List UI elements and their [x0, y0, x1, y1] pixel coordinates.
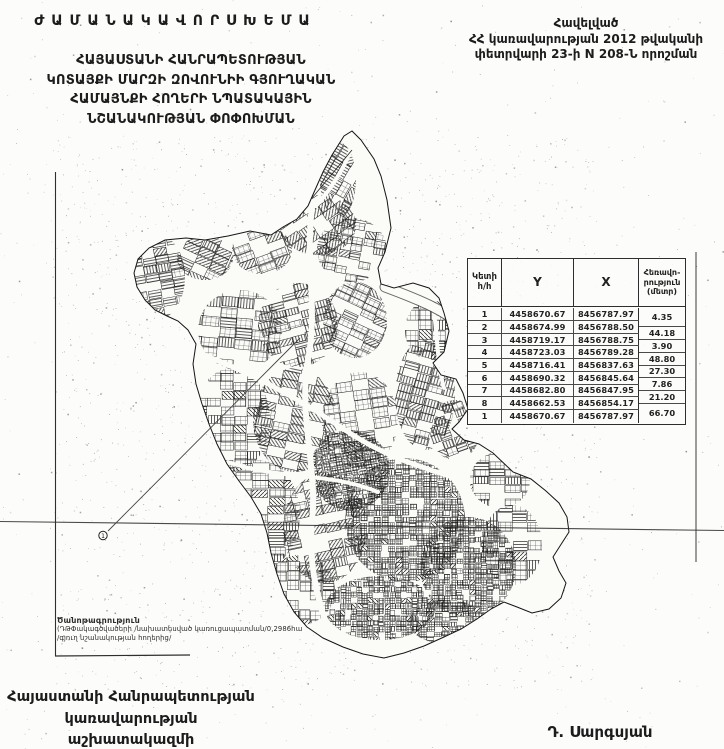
cell-y: 4458716.41 — [502, 359, 574, 371]
cell-y: 4458723.03 — [502, 346, 574, 358]
header-y: Y — [502, 259, 574, 306]
subtitle-line-1: ՀԱՅԱՍՏԱՆԻ ՀԱՆՐԱՊԵՏՈՒԹՅԱՆ — [2, 51, 380, 71]
cell-distance: 66.70 — [639, 404, 685, 424]
cell-x: 8456788.50 — [574, 321, 639, 333]
cell-x: 8456837.63 — [574, 359, 639, 371]
map-note-title: Ծանոթագրություն — [57, 616, 357, 625]
cell-distance: 3.90 — [639, 340, 685, 353]
table-row: 14458670.678456787.97 — [468, 410, 639, 423]
table-row: 74458682.808456847.95 — [468, 385, 639, 398]
cell-point: 1 — [468, 410, 502, 423]
cell-x: 8456854.17 — [574, 397, 639, 409]
cell-distance: 44.18 — [639, 327, 685, 340]
cell-x: 8456789.28 — [574, 346, 639, 358]
cell-point: 7 — [468, 385, 502, 397]
subtitle-line-3: ՀԱՄԱՅՆՔԻ ՀՈՂԵՐԻ ՆՊԱՏԱԿԱՅԻՆ — [2, 90, 380, 110]
cell-point: 4 — [468, 346, 502, 358]
table-row: 24458674.998456788.50 — [468, 321, 639, 334]
coordinate-table-header: Կետի հ/հ Y X Հեռավո- րություն (մետր) — [468, 259, 685, 307]
document-subtitle: ՀԱՅԱՍՏԱՆԻ ՀԱՆՐԱՊԵՏՈՒԹՅԱՆ ԿՈՏԱՅՔԻ ՄԱՐԶԻ Զ… — [2, 51, 380, 129]
approval-line-2: ՀՀ կառավարության 2012 թվականի — [450, 32, 722, 48]
cell-point: 1 — [468, 308, 502, 320]
cell-distance: 48.80 — [639, 353, 685, 366]
subtitle-line-2: ԿՈՏԱՅՔԻ ՄԱՐԶԻ ԶՈՎՈՒՆԻԻ ԳՅՈՒՂԱԿԱՆ — [2, 71, 380, 91]
cell-x: 8456787.97 — [574, 410, 639, 423]
table-row: 34458719.178456788.75 — [468, 334, 639, 347]
approval-line-3: փետրվարի 23-ի N 208-Ն որոշման — [450, 47, 722, 63]
signatory-line-2: կառավարության աշխատակազմի — [0, 709, 262, 749]
cell-point: 3 — [468, 334, 502, 346]
header-point-number: Կետի հ/հ — [468, 259, 502, 306]
cell-y: 4458674.99 — [502, 321, 574, 333]
cell-x: 8456845.64 — [574, 372, 639, 384]
signatory-title: Հայաստանի Հանրապետության կառավարության ա… — [0, 687, 262, 749]
cell-distance: 7.86 — [639, 378, 685, 391]
cell-point: 6 — [468, 372, 502, 384]
cell-distance: 21.20 — [639, 391, 685, 404]
cell-x: 8456787.97 — [574, 308, 639, 320]
approval-note: Հավելված ՀՀ կառավարության 2012 թվականի փ… — [450, 16, 722, 63]
cell-distance: 27.30 — [639, 366, 685, 379]
subtitle-line-4: ՆՇԱՆԱԿՈՒԹՅԱՆ ՓՈՓՈԽՄԱՆ — [2, 110, 380, 130]
cell-y: 4458719.17 — [502, 334, 574, 346]
cell-y: 4458670.67 — [502, 410, 574, 423]
cell-point: 2 — [468, 321, 502, 333]
cell-distance: 4.35 — [639, 308, 685, 327]
cell-y: 4458662.53 — [502, 397, 574, 409]
cell-x: 8456788.75 — [574, 334, 639, 346]
table-row: 84458662.538456854.17 — [468, 397, 639, 410]
table-row: 14458670.678456787.97 — [468, 308, 639, 321]
approval-line-1: Հավելված — [450, 16, 722, 32]
document-title: Ժ Ա Մ Ա Ն Ա Կ Ա Վ Ո Ր Ս Խ Ե Մ Ա — [0, 13, 345, 29]
cell-y: 4458670.67 — [502, 308, 574, 320]
cell-point: 8 — [468, 397, 502, 409]
cell-y: 4458682.80 — [502, 385, 574, 397]
signature-name: Դ. Սարգսյան — [525, 723, 675, 741]
cell-x: 8456847.95 — [574, 385, 639, 397]
table-row: 54458716.418456837.63 — [468, 359, 639, 372]
header-distance: Հեռավո- րություն (մետր) — [639, 259, 685, 306]
map-note-line-3: /գյուղ նշանակության հողերից/ — [57, 634, 357, 643]
document-page: 1 Ժ Ա Մ Ա Ն Ա Կ Ա Վ Ո Ր Ս Խ Ե Մ Ա ՀԱՅԱՍՏ… — [0, 0, 724, 749]
map-note: Ծանոթագրություն (ԴԹՓակագծվածերի /նախատես… — [57, 616, 357, 643]
coordinate-table-body: 14458670.678456787.9724458674.998456788.… — [468, 308, 639, 424]
signatory-line-1: Հայաստանի Հանրապետության — [0, 687, 262, 709]
map-note-line-2: (ԴԹՓակագծվածերի /նախատեսված կառուցապատմա… — [57, 625, 357, 634]
header-x: X — [574, 259, 639, 306]
cell-point: 5 — [468, 359, 502, 371]
distance-column: 4.3544.183.9048.8027.307.8621.2066.70 — [639, 308, 685, 424]
table-row: 44458723.038456789.28 — [468, 346, 639, 359]
coordinate-table: Կետի հ/հ Y X Հեռավո- րություն (մետր) 144… — [467, 258, 686, 425]
cell-y: 4458690.32 — [502, 372, 574, 384]
table-row: 64458690.328456845.64 — [468, 372, 639, 385]
